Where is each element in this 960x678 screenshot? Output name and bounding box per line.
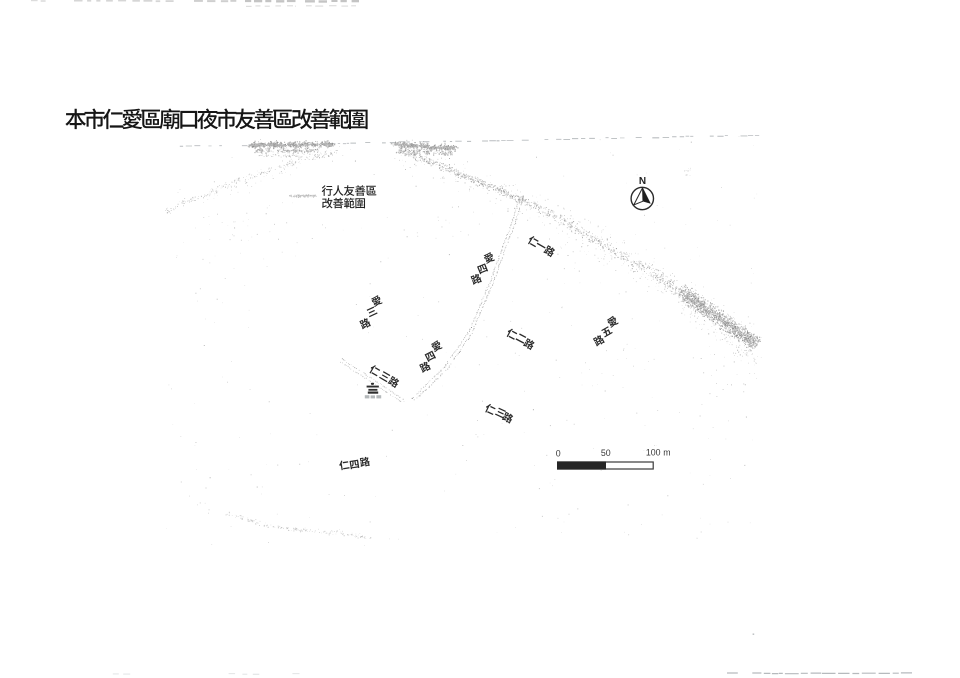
svg-text:100: 100 <box>646 448 661 458</box>
svg-text:m: m <box>663 448 670 458</box>
svg-text:50: 50 <box>601 448 611 458</box>
svg-text:N: N <box>639 176 646 187</box>
svg-text:0: 0 <box>556 448 561 458</box>
